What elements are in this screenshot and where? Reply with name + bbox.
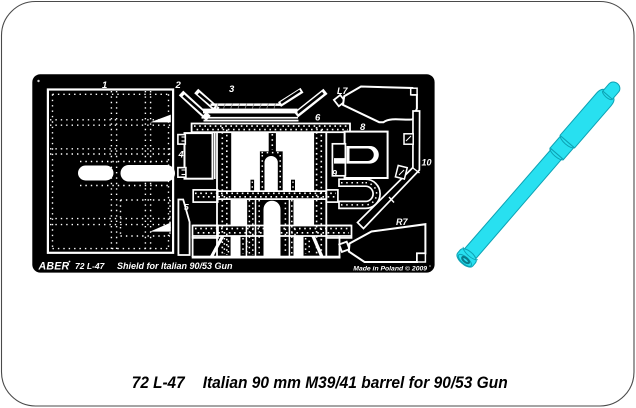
svg-text:9: 9 [332, 169, 337, 179]
svg-text:10: 10 [422, 158, 432, 168]
svg-text:72 L-47: 72 L-47 [132, 373, 186, 392]
svg-text:R7: R7 [396, 217, 408, 227]
svg-text:5: 5 [184, 202, 189, 212]
svg-text:4: 4 [178, 150, 184, 160]
svg-text:ABER: ABER [38, 261, 70, 273]
svg-text:1: 1 [102, 80, 107, 91]
svg-text:6: 6 [315, 113, 321, 124]
svg-text:Shield for Italian 90/53 Gun: Shield for Italian 90/53 Gun [117, 261, 233, 271]
svg-text:72 L-47: 72 L-47 [75, 261, 106, 271]
svg-text:Italian 90 mm M39/41 barrel fo: Italian 90 mm M39/41 barrel for 90/53 Gu… [203, 373, 508, 392]
svg-text:3: 3 [229, 84, 235, 95]
svg-text:8: 8 [360, 122, 366, 133]
svg-text:2: 2 [175, 80, 182, 91]
svg-text:Made in Poland © 2009: Made in Poland © 2009 [353, 265, 427, 273]
